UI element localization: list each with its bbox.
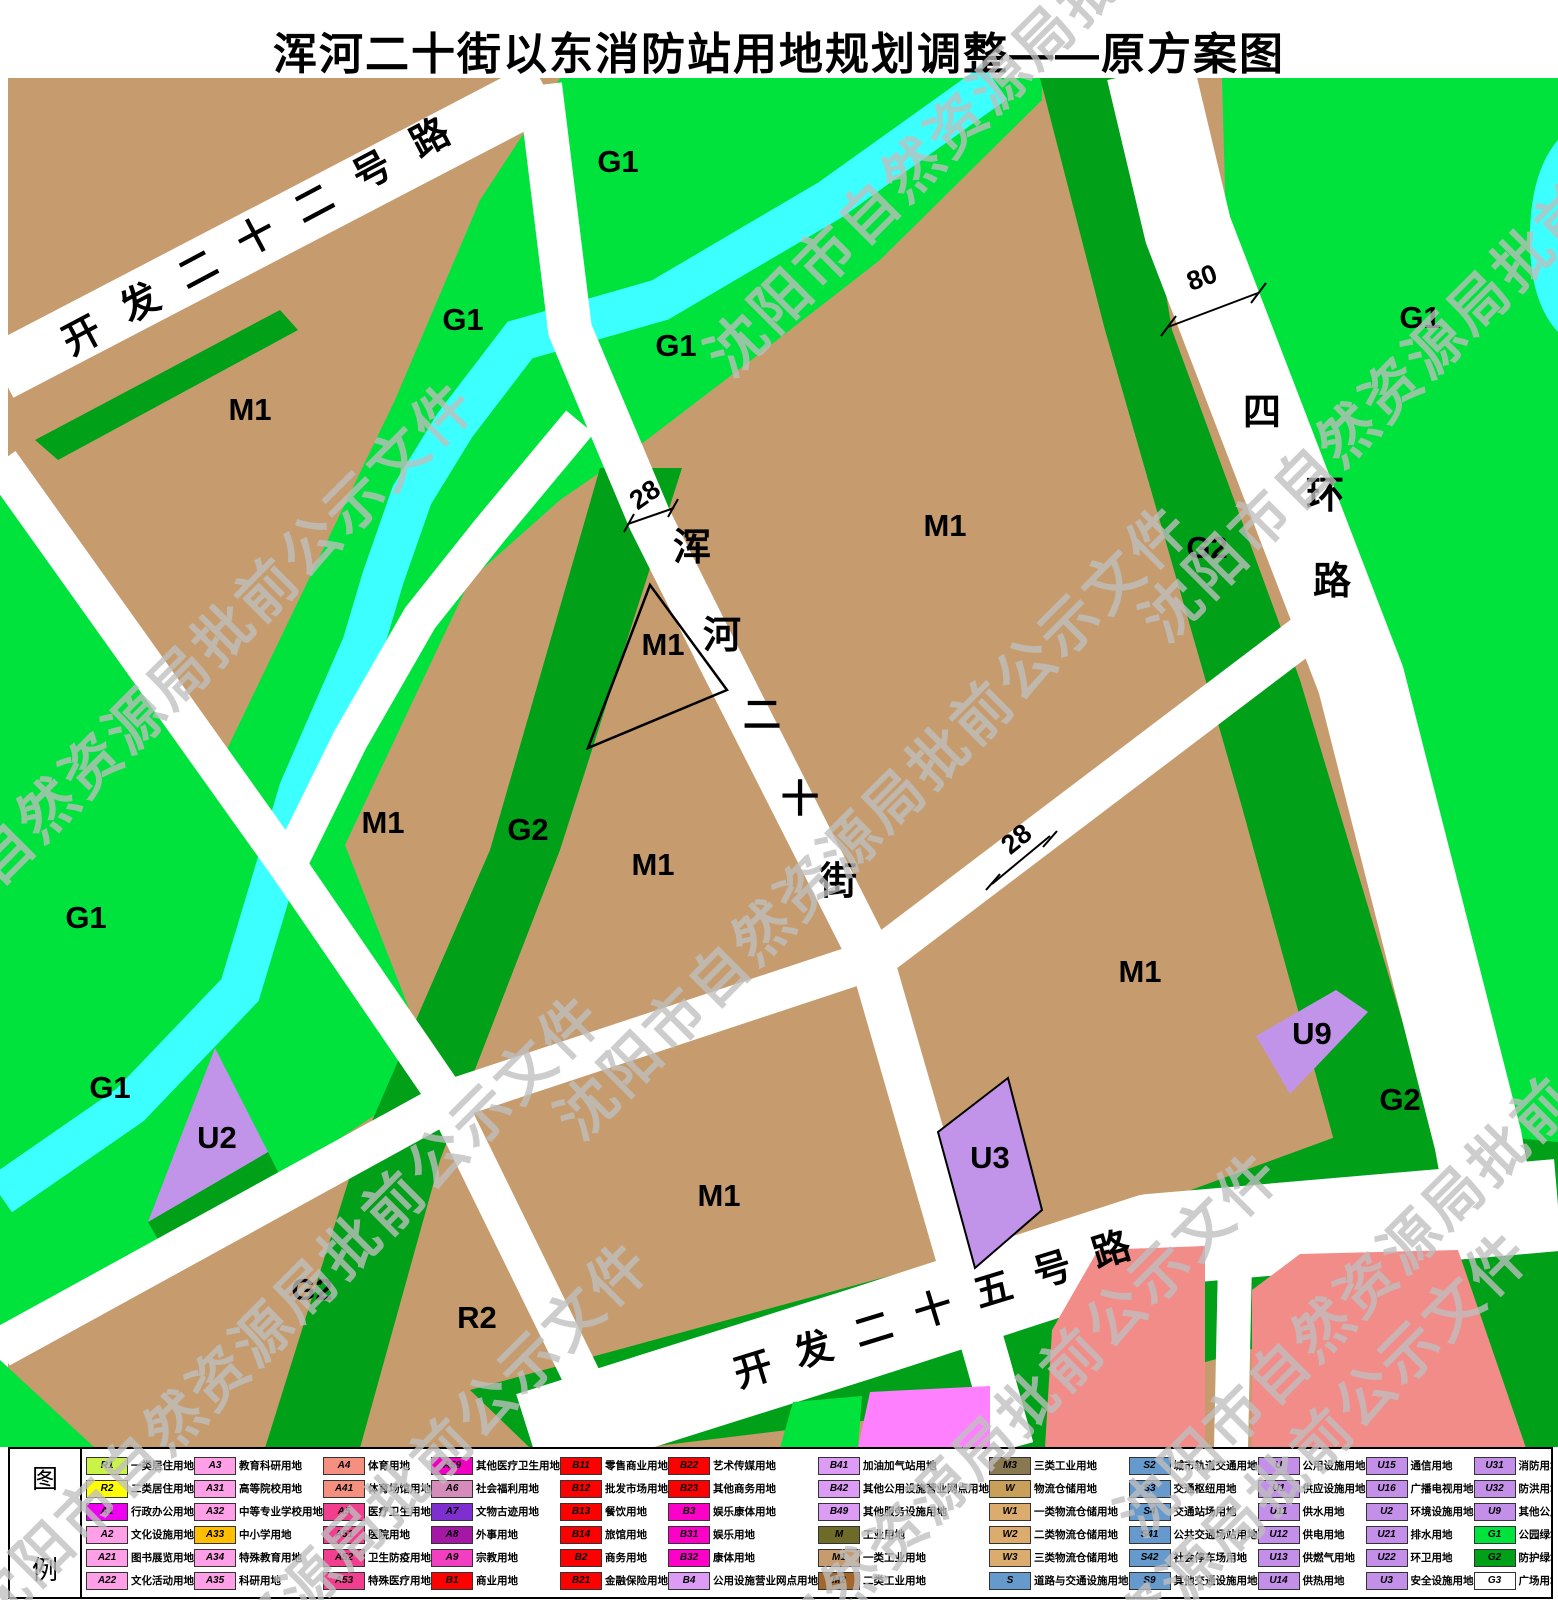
- legend-label: 消防用地: [1519, 1458, 1552, 1473]
- legend-swatch: B42: [818, 1480, 860, 1498]
- legend-item-B31: B31娱乐用地: [668, 1523, 818, 1546]
- legend-swatch: U13: [1258, 1549, 1300, 1567]
- legend-swatch: B22: [668, 1457, 710, 1475]
- legend-label: 环卫用地: [1411, 1550, 1453, 1565]
- legend-swatch: U12: [1258, 1526, 1300, 1544]
- road-name-char: 四: [1243, 392, 1281, 434]
- legend-item-B21: B21金融保险用地: [560, 1569, 668, 1592]
- legend-swatch: U3: [1366, 1572, 1408, 1590]
- legend-swatch: A6: [431, 1480, 473, 1498]
- legend-item-S2: S2城市轨道交通用地: [1129, 1454, 1258, 1477]
- page: 浑河二十街以东消防站用地规划调整——原方案图: [0, 0, 1558, 1600]
- legend-label: 供电用地: [1303, 1527, 1345, 1542]
- legend-label: 其他交通设施用地: [1174, 1573, 1258, 1588]
- legend-label: 公用设施营业网点用地: [713, 1573, 818, 1588]
- zone-label-M1: M1: [641, 627, 684, 662]
- map-title: 浑河二十街以东消防站用地规划调整——原方案图: [0, 18, 1558, 82]
- legend-grid: R1一类居住用地R2二类居住用地A1行政办公用地A2文化设施用地A21图书展览用…: [82, 1449, 1551, 1597]
- zone-label-M1: M1: [631, 847, 674, 882]
- legend-swatch: A51: [323, 1526, 365, 1544]
- legend-label: 旅馆用地: [605, 1527, 647, 1542]
- legend-item-W2: W2二类物流仓储用地: [989, 1523, 1129, 1546]
- legend-item-A9: A9宗教用地: [431, 1546, 560, 1569]
- legend-label: 防护绿地: [1519, 1550, 1552, 1565]
- zone-pink-block: [858, 1386, 990, 1447]
- legend-label: 卫生防疫用地: [368, 1550, 431, 1565]
- legend-label: 行政办公用地: [131, 1504, 194, 1519]
- legend-swatch: A21: [86, 1549, 128, 1567]
- legend-item-B23: B23其他商务用地: [668, 1477, 818, 1500]
- legend-swatch: B49: [818, 1503, 860, 1521]
- legend-label: 娱乐康体用地: [713, 1504, 776, 1519]
- legend-label: 供热用地: [1303, 1573, 1345, 1588]
- legend-swatch: B2: [560, 1549, 602, 1567]
- legend-swatch: B1: [431, 1572, 473, 1590]
- legend-label: 三类物流仓储用地: [1034, 1550, 1118, 1565]
- planning-map: G1G1G1G1G1G1M1M1M1M1M1M1M1G2G2G2G2U2U3U9…: [0, 0, 1558, 1447]
- road-name-char: 环: [1306, 475, 1344, 517]
- legend-item-A52: A52卫生防疫用地: [323, 1546, 431, 1569]
- zone-label-G1: G1: [442, 302, 483, 337]
- legend-label: 图书展览用地: [131, 1550, 194, 1565]
- legend-label: 供水用地: [1303, 1504, 1345, 1519]
- legend-swatch: S3: [1129, 1480, 1171, 1498]
- legend-item-B22: B22艺术传媒用地: [668, 1454, 818, 1477]
- legend-column: U31消防用地U32防洪用地U9其他公用设施用地G1公园绿地G2防护绿地G3广场…: [1474, 1454, 1552, 1597]
- legend-label: 广场用地: [1519, 1573, 1552, 1588]
- legend-item-W3: W3三类物流仓储用地: [989, 1546, 1129, 1569]
- legend-item-A51: A51医院用地: [323, 1523, 431, 1546]
- legend-item-B49: B49其他服务设施用地: [818, 1500, 989, 1523]
- legend-item-U11: U11供水用地: [1258, 1500, 1366, 1523]
- legend-item-G2: G2防护绿地: [1474, 1546, 1552, 1569]
- legend-column: S2城市轨道交通用地S3交通枢纽用地S4交通站场用地S41公共交通场站用地S42…: [1129, 1454, 1258, 1597]
- legend-swatch: A1: [86, 1503, 128, 1521]
- legend-item-S9: S9其他交通设施用地: [1129, 1569, 1258, 1592]
- legend-swatch: U: [1258, 1457, 1300, 1475]
- legend-item-U16: U16广播电视用地: [1366, 1477, 1474, 1500]
- legend-item-B2: B2商务用地: [560, 1546, 668, 1569]
- legend-item-A4: A4体育用地: [323, 1454, 431, 1477]
- legend-swatch: A59: [431, 1457, 473, 1475]
- legend-label: 医院用地: [368, 1527, 410, 1542]
- legend-item-M2: M2二类工业用地: [818, 1569, 989, 1592]
- legend-item-S: S道路与交通设施用地: [989, 1569, 1129, 1592]
- legend-swatch: B11: [560, 1457, 602, 1475]
- legend-item-S4: S4交通站场用地: [1129, 1500, 1258, 1523]
- zone-label-M1: M1: [923, 508, 966, 543]
- legend-swatch: M2: [818, 1572, 860, 1590]
- legend-swatch: B3: [668, 1503, 710, 1521]
- legend-swatch: A32: [194, 1503, 236, 1521]
- legend-swatch: B31: [668, 1526, 710, 1544]
- zone-label-M1: M1: [228, 392, 271, 427]
- legend-swatch: A2: [86, 1526, 128, 1544]
- legend-label: 交通站场用地: [1174, 1504, 1237, 1519]
- legend-label: 外事用地: [476, 1527, 518, 1542]
- legend-side-label: 图 例: [10, 1449, 82, 1597]
- legend-swatch: U32: [1474, 1480, 1516, 1498]
- legend-item-B41: B41加油加气站用地: [818, 1454, 989, 1477]
- legend-swatch: U14: [1258, 1572, 1300, 1590]
- zone-label-G1: G1: [89, 1070, 130, 1105]
- legend-swatch: M: [818, 1526, 860, 1544]
- legend-swatch: B32: [668, 1549, 710, 1567]
- zone-label-G2: G2: [291, 1272, 332, 1307]
- legend-label: 体育用地: [368, 1458, 410, 1473]
- legend-label: 批发市场用地: [605, 1481, 668, 1496]
- legend-swatch: U16: [1366, 1480, 1408, 1498]
- legend-label: 公共交通场站用地: [1174, 1527, 1258, 1542]
- legend-label: 二类工业用地: [863, 1573, 926, 1588]
- legend-swatch: R1: [86, 1457, 128, 1475]
- legend-swatch: B12: [560, 1480, 602, 1498]
- legend-label: 供燃气用地: [1303, 1550, 1356, 1565]
- legend-label: 城市轨道交通用地: [1174, 1458, 1258, 1473]
- legend-swatch: A8: [431, 1526, 473, 1544]
- legend-swatch: M3: [989, 1457, 1031, 1475]
- legend-item-R1: R1一类居住用地: [86, 1454, 194, 1477]
- legend-swatch: A35: [194, 1572, 236, 1590]
- zone-label-G2: G2: [507, 812, 548, 847]
- legend-swatch: A41: [323, 1480, 365, 1498]
- legend-swatch: W2: [989, 1526, 1031, 1544]
- legend-label: 一类物流仓储用地: [1034, 1504, 1118, 1519]
- legend-label: 通信用地: [1411, 1458, 1453, 1473]
- legend-swatch: G3: [1474, 1572, 1516, 1590]
- legend-column: R1一类居住用地R2二类居住用地A1行政办公用地A2文化设施用地A21图书展览用…: [86, 1454, 194, 1597]
- legend-label: 三类工业用地: [1034, 1458, 1097, 1473]
- legend-item-B13: B13餐饮用地: [560, 1500, 668, 1523]
- legend-swatch: A9: [431, 1549, 473, 1567]
- legend-item-A35: A35科研用地: [194, 1569, 323, 1592]
- legend-swatch: S2: [1129, 1457, 1171, 1475]
- legend-label: 二类居住用地: [131, 1481, 194, 1496]
- legend-item-M: M工业用地: [818, 1523, 989, 1546]
- legend-swatch: A34: [194, 1549, 236, 1567]
- legend-item-U31: U31消防用地: [1474, 1454, 1552, 1477]
- legend-label: 商业用地: [476, 1573, 518, 1588]
- legend-column: M3三类工业用地W物流仓储用地W1一类物流仓储用地W2二类物流仓储用地W3三类物…: [989, 1454, 1129, 1597]
- legend-swatch: A5: [323, 1503, 365, 1521]
- legend-item-U22: U22环卫用地: [1366, 1546, 1474, 1569]
- legend-item-A7: A7文物古迹用地: [431, 1500, 560, 1523]
- legend-label: 金融保险用地: [605, 1573, 668, 1588]
- legend-label: 一类工业用地: [863, 1550, 926, 1565]
- road-name-char: 河: [703, 615, 741, 657]
- legend: 图 例 R1一类居住用地R2二类居住用地A1行政办公用地A2文化设施用地A21图…: [8, 1447, 1553, 1599]
- legend-label: 宗教用地: [476, 1550, 518, 1565]
- legend-item-A34: A34特殊教育用地: [194, 1546, 323, 1569]
- legend-label: 排水用地: [1411, 1527, 1453, 1542]
- legend-label: 一类居住用地: [131, 1458, 194, 1473]
- legend-label: 文化设施用地: [131, 1527, 194, 1542]
- legend-column: B11零售商业用地B12批发市场用地B13餐饮用地B14旅馆用地B2商务用地B2…: [560, 1454, 668, 1597]
- legend-swatch: M1: [818, 1549, 860, 1567]
- legend-label: 其他医疗卫生用地: [476, 1458, 560, 1473]
- legend-swatch: U21: [1366, 1526, 1408, 1544]
- legend-label: 特殊医疗用地: [368, 1573, 431, 1588]
- legend-item-U1: U1供应设施用地: [1258, 1477, 1366, 1500]
- legend-item-M3: M3三类工业用地: [989, 1454, 1129, 1477]
- legend-label: 零售商业用地: [605, 1458, 668, 1473]
- zone-label-M1: M1: [1118, 954, 1161, 989]
- legend-item-A53: A53特殊医疗用地: [323, 1569, 431, 1592]
- legend-side-bottom: 例: [32, 1550, 58, 1587]
- legend-label: 文化活动用地: [131, 1573, 194, 1588]
- legend-label: 艺术传媒用地: [713, 1458, 776, 1473]
- legend-label: 娱乐用地: [713, 1527, 755, 1542]
- legend-swatch: U22: [1366, 1549, 1408, 1567]
- legend-label: 供应设施用地: [1303, 1481, 1366, 1496]
- legend-column: B22艺术传媒用地B23其他商务用地B3娱乐康体用地B31娱乐用地B32康体用地…: [668, 1454, 818, 1597]
- legend-item-A33: A33中小学用地: [194, 1523, 323, 1546]
- legend-swatch: R2: [86, 1480, 128, 1498]
- legend-label: 医疗卫生用地: [368, 1504, 431, 1519]
- legend-label: 其他商务用地: [713, 1481, 776, 1496]
- legend-column: U公用设施用地U1供应设施用地U11供水用地U12供电用地U13供燃气用地U14…: [1258, 1454, 1366, 1597]
- legend-swatch: B21: [560, 1572, 602, 1590]
- legend-label: 其他服务设施用地: [863, 1504, 947, 1519]
- legend-item-B4: B4公用设施营业网点用地: [668, 1569, 818, 1592]
- legend-label: 社会福利用地: [476, 1481, 539, 1496]
- legend-label: 文物古迹用地: [476, 1504, 539, 1519]
- legend-label: 公园绿地: [1519, 1527, 1552, 1542]
- road-name-char: 街: [818, 861, 857, 903]
- legend-item-U: U公用设施用地: [1258, 1454, 1366, 1477]
- legend-label: 防洪用地: [1519, 1481, 1552, 1496]
- legend-column: A59其他医疗卫生用地A6社会福利用地A7文物古迹用地A8外事用地A9宗教用地B…: [431, 1454, 560, 1597]
- legend-label: 广播电视用地: [1411, 1481, 1474, 1496]
- legend-swatch: G1: [1474, 1526, 1516, 1544]
- legend-label: 交通枢纽用地: [1174, 1481, 1237, 1496]
- legend-label: 中等专业学校用地: [239, 1504, 323, 1519]
- legend-label: 物流仓储用地: [1034, 1481, 1097, 1496]
- legend-label: 其他公用设施营业网点用地: [863, 1481, 989, 1496]
- legend-swatch: B23: [668, 1480, 710, 1498]
- legend-swatch: A4: [323, 1457, 365, 1475]
- legend-item-B14: B14旅馆用地: [560, 1523, 668, 1546]
- legend-swatch: A22: [86, 1572, 128, 1590]
- legend-label: 工业用地: [863, 1527, 905, 1542]
- legend-item-S3: S3交通枢纽用地: [1129, 1477, 1258, 1500]
- legend-item-A2: A2文化设施用地: [86, 1523, 194, 1546]
- legend-item-A5: A5医疗卫生用地: [323, 1500, 431, 1523]
- legend-item-R2: R2二类居住用地: [86, 1477, 194, 1500]
- legend-swatch: S41: [1129, 1526, 1171, 1544]
- legend-label: 体育场馆用地: [368, 1481, 431, 1496]
- road-name-char: 浑: [673, 527, 711, 569]
- zone-label-G2: G2: [1186, 530, 1227, 565]
- legend-label: 社会停车场用地: [1174, 1550, 1248, 1565]
- legend-swatch: A31: [194, 1480, 236, 1498]
- legend-swatch: S4: [1129, 1503, 1171, 1521]
- legend-label: 高等院校用地: [239, 1481, 302, 1496]
- legend-swatch: U11: [1258, 1503, 1300, 1521]
- legend-label: 特殊教育用地: [239, 1550, 302, 1565]
- zone-label-G1: G1: [597, 144, 638, 179]
- legend-swatch: B14: [560, 1526, 602, 1544]
- legend-item-W: W物流仓储用地: [989, 1477, 1129, 1500]
- legend-item-G1: G1公园绿地: [1474, 1523, 1552, 1546]
- zone-label-G2: G2: [1379, 1082, 1420, 1117]
- legend-item-A41: A41体育场馆用地: [323, 1477, 431, 1500]
- legend-item-A31: A31高等院校用地: [194, 1477, 323, 1500]
- legend-item-W1: W1一类物流仓储用地: [989, 1500, 1129, 1523]
- legend-item-S42: S42社会停车场用地: [1129, 1546, 1258, 1569]
- legend-label: 环境设施用地: [1411, 1504, 1474, 1519]
- legend-item-B12: B12批发市场用地: [560, 1477, 668, 1500]
- legend-item-U21: U21排水用地: [1366, 1523, 1474, 1546]
- legend-label: 康体用地: [713, 1550, 755, 1565]
- legend-label: 商务用地: [605, 1550, 647, 1565]
- zone-label-G1: G1: [65, 900, 106, 935]
- legend-item-U13: U13供燃气用地: [1258, 1546, 1366, 1569]
- legend-item-A1: A1行政办公用地: [86, 1500, 194, 1523]
- legend-item-M1: M1一类工业用地: [818, 1546, 989, 1569]
- legend-swatch: W: [989, 1480, 1031, 1498]
- legend-item-B11: B11零售商业用地: [560, 1454, 668, 1477]
- legend-item-B3: B3娱乐康体用地: [668, 1500, 818, 1523]
- legend-label: 加油加气站用地: [863, 1458, 937, 1473]
- legend-swatch: S: [989, 1572, 1031, 1590]
- legend-label: 其他公用设施用地: [1519, 1504, 1552, 1519]
- legend-item-A32: A32中等专业学校用地: [194, 1500, 323, 1523]
- legend-item-A3: A3教育科研用地: [194, 1454, 323, 1477]
- zone-label-U2: U2: [197, 1120, 237, 1155]
- legend-item-A21: A21图书展览用地: [86, 1546, 194, 1569]
- legend-item-B1: B1商业用地: [431, 1569, 560, 1592]
- road-name-char: 路: [1313, 561, 1352, 603]
- legend-item-U12: U12供电用地: [1258, 1523, 1366, 1546]
- legend-swatch: U9: [1474, 1503, 1516, 1521]
- legend-item-A59: A59其他医疗卫生用地: [431, 1454, 560, 1477]
- legend-item-A6: A6社会福利用地: [431, 1477, 560, 1500]
- legend-item-U15: U15通信用地: [1366, 1454, 1474, 1477]
- legend-label: 餐饮用地: [605, 1504, 647, 1519]
- legend-column: U15通信用地U16广播电视用地U2环境设施用地U21排水用地U22环卫用地U3…: [1366, 1454, 1474, 1597]
- legend-label: 公用设施用地: [1303, 1458, 1366, 1473]
- legend-swatch: S42: [1129, 1549, 1171, 1567]
- legend-item-U2: U2环境设施用地: [1366, 1500, 1474, 1523]
- legend-swatch: U31: [1474, 1457, 1516, 1475]
- legend-item-B42: B42其他公用设施营业网点用地: [818, 1477, 989, 1500]
- legend-item-U14: U14供热用地: [1258, 1569, 1366, 1592]
- legend-swatch: W3: [989, 1549, 1031, 1567]
- legend-item-A22: A22文化活动用地: [86, 1569, 194, 1592]
- zone-label-G1: G1: [655, 328, 696, 363]
- legend-item-B32: B32康体用地: [668, 1546, 818, 1569]
- legend-item-S41: S41公共交通场站用地: [1129, 1523, 1258, 1546]
- legend-item-U32: U32防洪用地: [1474, 1477, 1552, 1500]
- legend-label: 道路与交通设施用地: [1034, 1573, 1129, 1588]
- zone-label-G1: G1: [1399, 300, 1440, 335]
- zone-label-R2: R2: [457, 1300, 497, 1335]
- legend-column: B41加油加气站用地B42其他公用设施营业网点用地B49其他服务设施用地M工业用…: [818, 1454, 989, 1597]
- legend-label: 安全设施用地: [1411, 1573, 1474, 1588]
- legend-label: 科研用地: [239, 1573, 281, 1588]
- road-name-char: 二: [743, 695, 781, 737]
- zone-label-U3: U3: [970, 1140, 1010, 1175]
- legend-swatch: A52: [323, 1549, 365, 1567]
- legend-swatch: A7: [431, 1503, 473, 1521]
- zone-label-M1: M1: [697, 1178, 740, 1213]
- legend-swatch: U15: [1366, 1457, 1408, 1475]
- legend-swatch: A53: [323, 1572, 365, 1590]
- legend-label: 二类物流仓储用地: [1034, 1527, 1118, 1542]
- legend-swatch: S9: [1129, 1572, 1171, 1590]
- legend-item-U3: U3安全设施用地: [1366, 1569, 1474, 1592]
- legend-swatch: W1: [989, 1503, 1031, 1521]
- legend-swatch: G2: [1474, 1549, 1516, 1567]
- road-name-char: 十: [781, 779, 819, 821]
- legend-label: 教育科研用地: [239, 1458, 302, 1473]
- legend-column: A4体育用地A41体育场馆用地A5医疗卫生用地A51医院用地A52卫生防疫用地A…: [323, 1454, 431, 1597]
- legend-swatch: B41: [818, 1457, 860, 1475]
- legend-item-A8: A8外事用地: [431, 1523, 560, 1546]
- legend-swatch: A3: [194, 1457, 236, 1475]
- legend-column: A3教育科研用地A31高等院校用地A32中等专业学校用地A33中小学用地A34特…: [194, 1454, 323, 1597]
- legend-swatch: U2: [1366, 1503, 1408, 1521]
- zone-label-M1: M1: [361, 805, 404, 840]
- legend-swatch: A33: [194, 1526, 236, 1544]
- legend-swatch: B13: [560, 1503, 602, 1521]
- legend-side-top: 图: [32, 1459, 58, 1496]
- legend-item-U9: U9其他公用设施用地: [1474, 1500, 1552, 1523]
- road-between-salmon: [1231, 1262, 1235, 1447]
- legend-label: 中小学用地: [239, 1527, 292, 1542]
- legend-swatch: B4: [668, 1572, 710, 1590]
- legend-swatch: U1: [1258, 1480, 1300, 1498]
- legend-item-G3: G3广场用地: [1474, 1569, 1552, 1592]
- zone-label-U9: U9: [1292, 1016, 1332, 1051]
